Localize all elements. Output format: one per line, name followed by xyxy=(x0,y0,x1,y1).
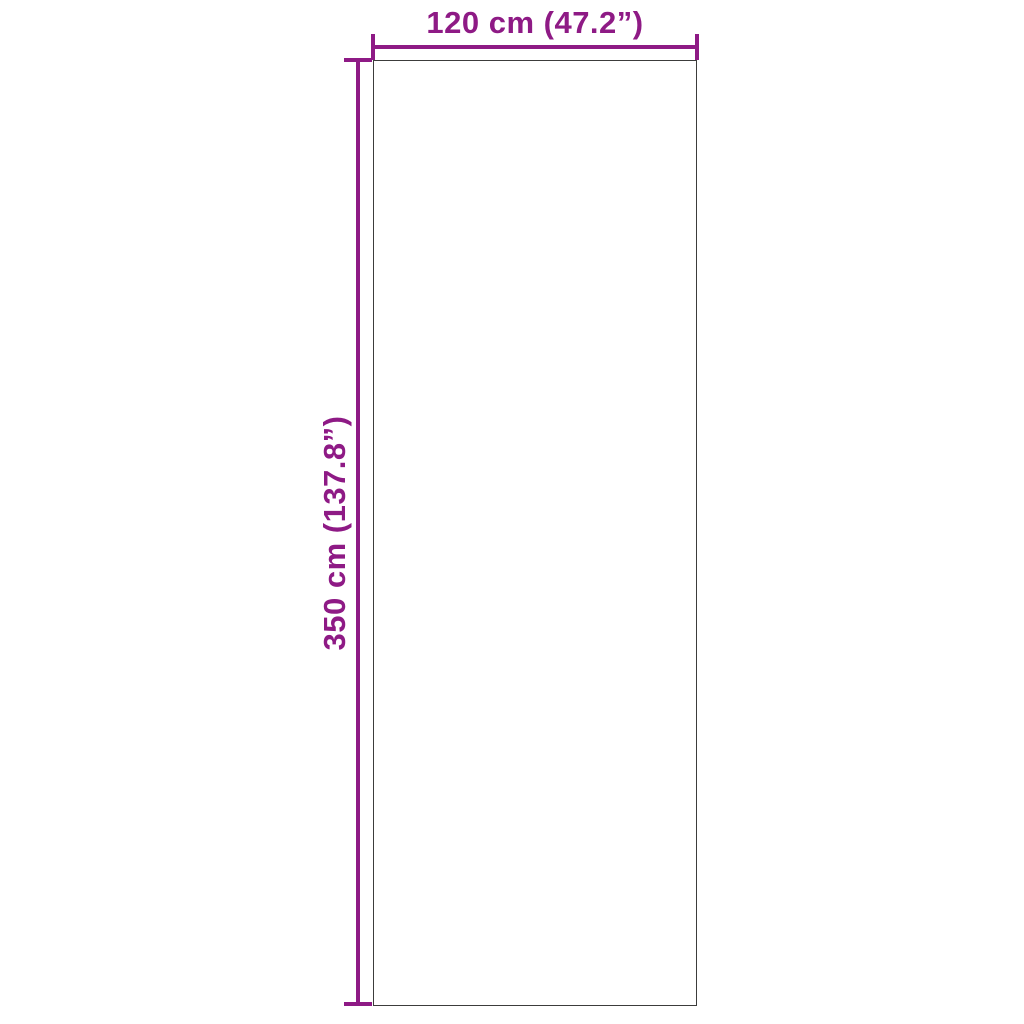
height-dimension-label: 350 cm (137.8”) xyxy=(313,60,357,1006)
product-outline-rect xyxy=(373,60,697,1006)
width-dimension-label: 120 cm (47.2”) xyxy=(373,6,697,40)
product-dimension-diagram: 120 cm (47.2”) 350 cm (137.8”) xyxy=(0,0,1024,1024)
width-dimension-line xyxy=(373,45,697,49)
